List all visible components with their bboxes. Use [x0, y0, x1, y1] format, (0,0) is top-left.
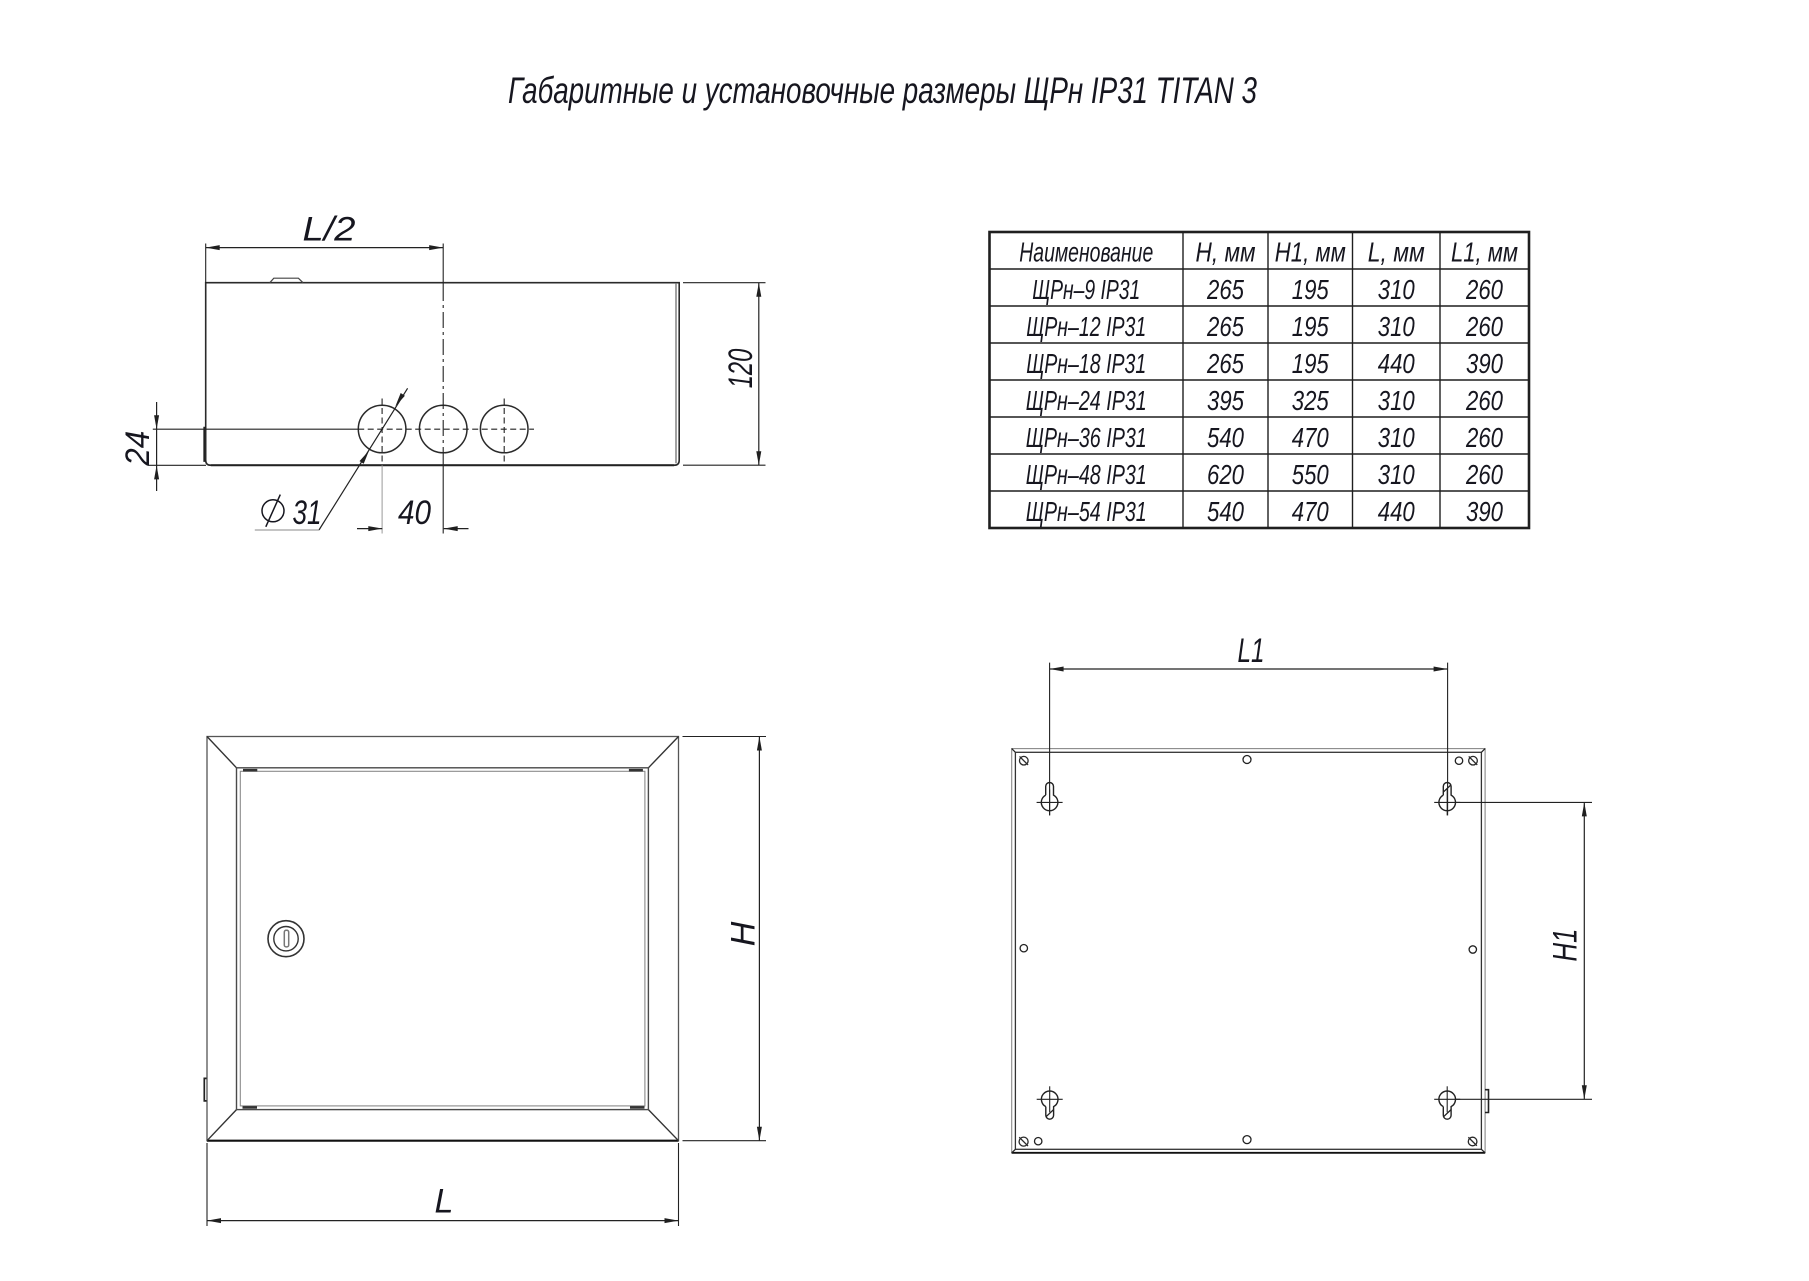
svg-text:ЩРн–36 IP31: ЩРн–36 IP31 [1026, 422, 1147, 453]
svg-text:31: 31 [293, 494, 322, 532]
svg-text:195: 195 [1292, 311, 1330, 342]
svg-text:260: 260 [1465, 459, 1503, 490]
svg-text:550: 550 [1292, 459, 1330, 490]
svg-text:ЩРн–54 IP31: ЩРн–54 IP31 [1026, 496, 1147, 527]
svg-text:260: 260 [1465, 274, 1503, 305]
svg-text:120: 120 [722, 349, 760, 389]
svg-text:Наименование: Наименование [1019, 237, 1153, 268]
svg-text:325: 325 [1292, 385, 1330, 416]
svg-text:H, мм: H, мм [1196, 237, 1256, 268]
svg-text:310: 310 [1378, 274, 1416, 305]
svg-text:310: 310 [1378, 459, 1416, 490]
svg-text:ЩРн–48 IP31: ЩРн–48 IP31 [1026, 459, 1147, 490]
svg-text:195: 195 [1292, 274, 1330, 305]
svg-text:Габаритные и установочные разм: Габаритные и установочные размеры ЩРн IP… [508, 70, 1257, 111]
svg-text:ЩРн–24 IP31: ЩРн–24 IP31 [1026, 385, 1147, 416]
svg-text:L/2: L/2 [303, 211, 356, 249]
svg-text:265: 265 [1206, 348, 1244, 379]
svg-text:310: 310 [1378, 385, 1416, 416]
svg-text:470: 470 [1292, 422, 1330, 453]
svg-text:24: 24 [119, 431, 157, 467]
svg-text:40: 40 [398, 494, 431, 532]
svg-text:L1: L1 [1238, 632, 1265, 670]
svg-text:195: 195 [1292, 348, 1330, 379]
svg-text:395: 395 [1207, 385, 1245, 416]
svg-text:620: 620 [1207, 459, 1245, 490]
svg-text:H1: H1 [1547, 929, 1585, 962]
svg-text:470: 470 [1292, 496, 1330, 527]
svg-text:ЩРн–12 IP31: ЩРн–12 IP31 [1026, 311, 1146, 342]
svg-text:265: 265 [1206, 311, 1244, 342]
svg-text:L, мм: L, мм [1368, 237, 1425, 268]
svg-text:390: 390 [1466, 496, 1504, 527]
svg-text:260: 260 [1465, 385, 1503, 416]
svg-text:260: 260 [1465, 422, 1503, 453]
svg-text:H: H [725, 921, 763, 946]
svg-text:260: 260 [1465, 311, 1503, 342]
svg-text:440: 440 [1378, 496, 1416, 527]
svg-text:L: L [435, 1183, 454, 1221]
svg-text:540: 540 [1207, 496, 1245, 527]
svg-text:310: 310 [1378, 311, 1416, 342]
svg-text:H1, мм: H1, мм [1275, 237, 1346, 268]
svg-text:ЩРн–9 IP31: ЩРн–9 IP31 [1032, 274, 1140, 305]
svg-text:390: 390 [1466, 348, 1504, 379]
svg-text:ЩРн–18 IP31: ЩРн–18 IP31 [1026, 348, 1146, 379]
svg-text:L1, мм: L1, мм [1451, 237, 1518, 268]
svg-text:265: 265 [1206, 274, 1244, 305]
svg-text:440: 440 [1378, 348, 1416, 379]
svg-text:540: 540 [1207, 422, 1245, 453]
svg-text:310: 310 [1378, 422, 1416, 453]
